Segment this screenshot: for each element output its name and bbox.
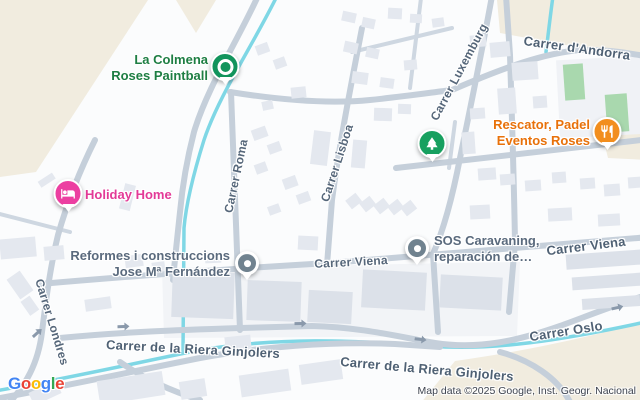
holiday-home-marker[interactable] [54,179,83,208]
one-way-arrow-icon [413,330,428,349]
street-label-carrer-viena: Carrer Viena [546,234,627,259]
reformes-i-construccions-jose-m-fernandez-marker[interactable] [235,251,259,275]
one-way-arrow-icon [117,318,131,336]
reformes-i-construccions-jose-m-fernandez-label[interactable]: Reformes i construccionsJose Mª Fernánde… [70,248,230,280]
street-label-carrer-londres: Carrer Londres [32,277,72,367]
street-label-carrer-lisboa: Carrer Lisboa [318,122,356,203]
holiday-home-label[interactable]: Holiday Home [85,187,172,203]
dot-glyph [238,254,256,272]
street-label-carrer-viena: Carrer Viena [314,253,388,271]
google-logo-letter: o [21,374,31,393]
street-label-carrer-oslo: Carrer Oslo [528,318,603,344]
park-marker[interactable] [418,129,447,158]
rescator-padel-eventos-roses-label[interactable]: Rescator, PadelEventos Roses [493,117,590,149]
google-logo-letter: o [31,374,41,393]
paintball-icon [217,59,233,75]
labels-layer: Carrer d'AndorraCarrer LuxemburgCarrer L… [0,0,640,400]
google-logo-letter: G [8,374,21,393]
map-attribution: Map data ©2025 Google, Inst. Geogr. Naci… [418,385,636,397]
dot-glyph [408,239,426,257]
sos-caravaning-label[interactable]: SOS Caravaning,reparación de… [434,233,539,265]
google-logo-letter: g [41,374,51,393]
street-label-carrer-luxemburg: Carrer Luxemburg [427,21,490,123]
bed-icon [61,186,76,201]
restaurant-icon [600,124,615,139]
street-label-carrer-de-la-riera-ginjolers: Carrer de la Riera Ginjolers [340,354,515,384]
sos-caravaning-marker[interactable] [405,236,429,260]
rescator-padel-eventos-roses-marker[interactable] [593,117,622,146]
la-colmena-roses-paintball-label[interactable]: La ColmenaRoses Paintball [111,52,208,84]
tree-icon [425,136,440,151]
street-label-carrer-roma: Carrer Roma [221,138,250,214]
google-logo[interactable]: Google [8,374,64,394]
street-label-carrer-de-la-riera-ginjolers: Carrer de la Riera Ginjolers [106,337,280,361]
street-label-carrer-d-andorra: Carrer d'Andorra [523,33,631,63]
la-colmena-roses-paintball-marker[interactable] [211,52,240,81]
map-canvas[interactable]: Carrer d'AndorraCarrer LuxemburgCarrer L… [0,0,640,400]
one-way-arrow-icon [27,322,49,344]
one-way-arrow-icon [294,315,307,333]
google-logo-letter: e [55,374,64,393]
one-way-arrow-icon [610,298,627,318]
